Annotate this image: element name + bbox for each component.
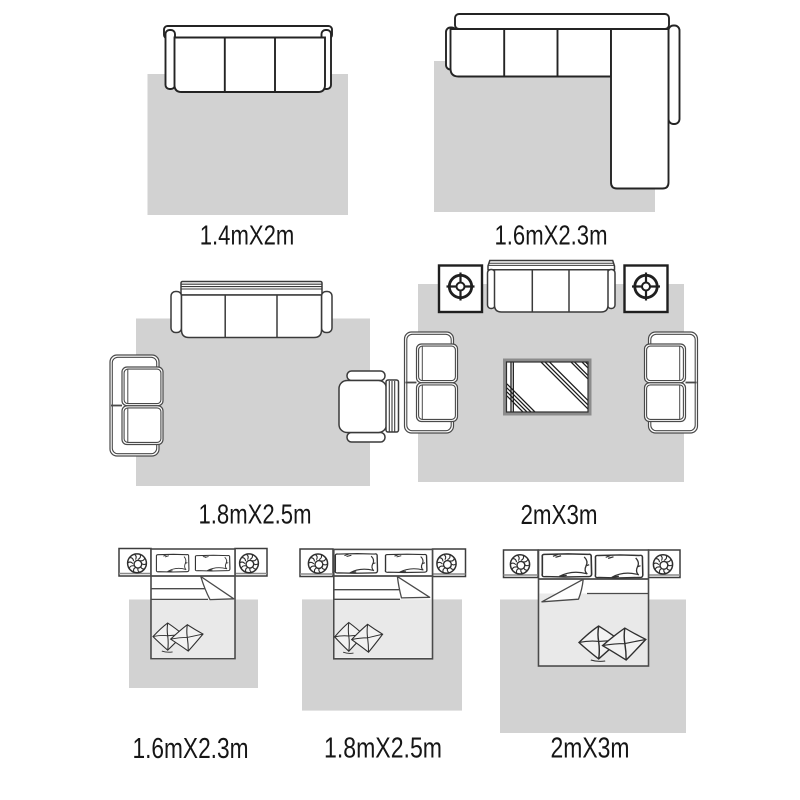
svg-text:1.4mX2m: 1.4mX2m	[200, 219, 295, 250]
svg-text:2mX3m: 2mX3m	[551, 733, 630, 765]
svg-text:1.8mX2.5m: 1.8mX2.5m	[324, 733, 442, 765]
svg-text:2mX3m: 2mX3m	[521, 499, 598, 530]
svg-text:1.6mX2.3m: 1.6mX2.3m	[133, 733, 249, 765]
svg-text:1.8mX2.5m: 1.8mX2.5m	[199, 499, 312, 530]
svg-text:1.6mX2.3m: 1.6mX2.3m	[495, 219, 608, 250]
